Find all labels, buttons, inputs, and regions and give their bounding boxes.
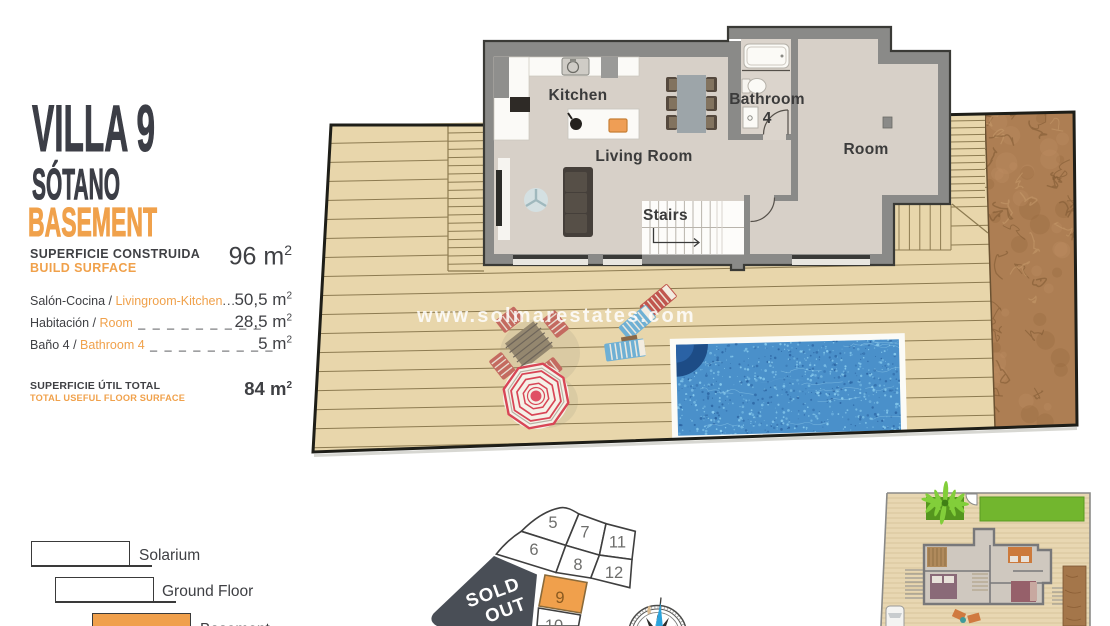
svg-text:7: 7 — [580, 524, 589, 542]
svg-text:6: 6 — [529, 541, 538, 559]
svg-text:5: 5 — [548, 514, 557, 532]
svg-text:8: 8 — [573, 556, 582, 574]
svg-text:10: 10 — [545, 617, 563, 626]
svg-text:11: 11 — [609, 534, 626, 552]
svg-text:12: 12 — [605, 564, 623, 582]
svg-text:9: 9 — [555, 589, 564, 607]
